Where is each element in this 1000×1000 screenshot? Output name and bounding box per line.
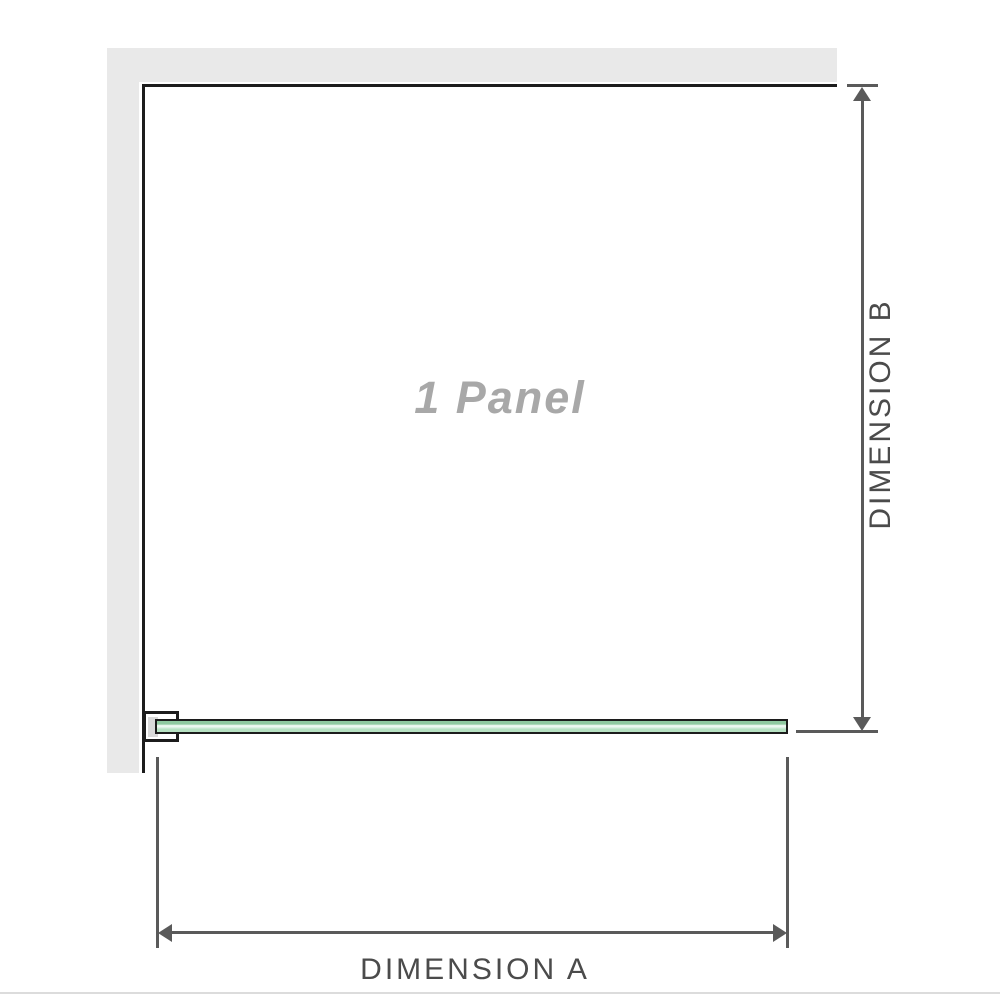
dimension-b-label: DIMENSION B: [864, 298, 898, 529]
dimension-a-arrow-right-icon: [773, 924, 787, 942]
wall-top: [107, 48, 837, 82]
opening-top-edge-line: [142, 84, 837, 87]
dimension-a-label: DIMENSION A: [360, 953, 590, 987]
dimension-b-arrow-down-icon: [853, 717, 871, 731]
panel-count-label: 1 Panel: [414, 372, 586, 424]
dimension-a-line: [168, 931, 777, 934]
bottom-divider-line: [0, 992, 1000, 994]
dimension-a-left-tick: [156, 757, 159, 948]
dimension-a-arrow-left-icon: [158, 924, 172, 942]
wall-left: [107, 48, 139, 773]
dimension-a-right-tick: [786, 757, 789, 948]
dimension-b-arrow-up-icon: [853, 87, 871, 101]
shower-panel-diagram: 1 Panel DIMENSION B DIMENSION A: [0, 0, 1000, 1000]
glass-panel: [155, 719, 788, 734]
opening-left-edge-line: [142, 84, 145, 773]
